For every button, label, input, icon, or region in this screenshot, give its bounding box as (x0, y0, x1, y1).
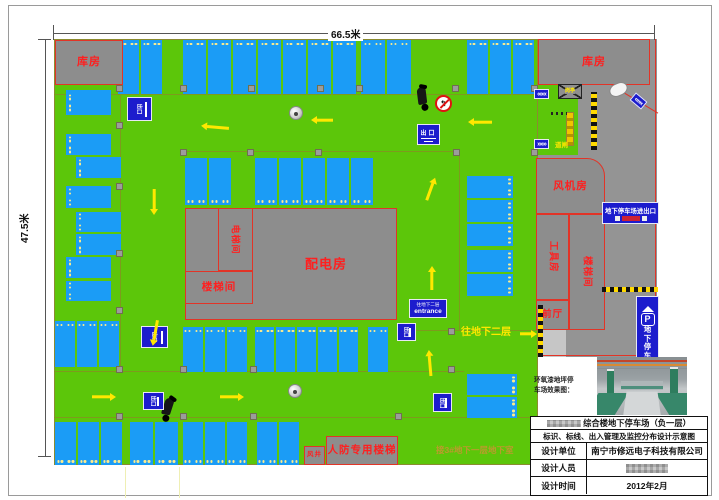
wheel-stop-dots (236, 43, 253, 45)
wheel-stop-dots (211, 43, 228, 45)
designer-label: 设计人员 (531, 460, 587, 476)
titleblock-row-design-unit: 设计单位 南宁市修远电子科技有限公司 (531, 443, 707, 460)
wheel-stop-dots (353, 200, 370, 202)
pillar-marker (448, 328, 455, 335)
parking-stall (283, 40, 306, 94)
wheel-stop-dots (508, 202, 510, 219)
parking-stall (467, 397, 517, 418)
entrance-sign: 往地下二层entrance (409, 299, 447, 318)
parking-stall (141, 40, 162, 94)
parking-stall (78, 422, 99, 465)
designer-value (587, 460, 707, 476)
parking-entrance-sign-text: 地下停车场进出口 (605, 206, 656, 215)
wheel-stop-dots (469, 43, 486, 45)
wheel-stop-dots (206, 460, 223, 462)
left-dimension-tick-top (38, 39, 51, 40)
chevron-left-text: ««« (537, 91, 546, 98)
plan-line (54, 417, 538, 418)
no-left-turn-sign: ↰ (435, 95, 452, 112)
dome-camera-icon (289, 106, 303, 120)
wheel-stop-dots (340, 330, 357, 332)
yellow-black-barrier-stripe (591, 92, 597, 150)
direction-arrow (427, 266, 437, 290)
top-dimension-tick-right (654, 25, 655, 40)
room-label: 电梯间 (231, 224, 240, 254)
parking-stall (279, 158, 301, 205)
wheel-stop-dots (228, 460, 245, 462)
photo-caption-line2: 车场效果图： (534, 386, 596, 396)
room-label: 前厅 (542, 310, 563, 320)
parking-stall (257, 422, 277, 465)
wheel-stop-dots (56, 324, 73, 326)
design-unit-label: 设计单位 (531, 443, 587, 459)
fold-mark (179, 467, 180, 498)
chevron-right: »»» (534, 139, 549, 149)
wheel-stop-dots (57, 460, 74, 462)
pillar-marker (180, 366, 187, 373)
wheel-stop-dots (79, 236, 81, 253)
wheel-stop-dots (69, 259, 71, 276)
yellow-black-barrier-stripe (602, 287, 658, 292)
title-line-1-text: 综合楼地下停车场（负一层） (583, 417, 691, 429)
wheel-stop-dots (364, 43, 381, 45)
room-fan-room: 风机房 (536, 158, 605, 214)
pillar-marker (116, 307, 123, 314)
parking-stall (101, 422, 122, 465)
room-label: 库房 (77, 57, 101, 68)
parking-stall (255, 327, 274, 372)
parking-stall (99, 321, 119, 367)
exit-sign-upper-text (421, 138, 436, 139)
wheel-stop-dots (103, 460, 120, 462)
room-stair-room-central: 楼梯间 (185, 271, 253, 304)
wheel-stop-dots (508, 252, 510, 269)
parking-stall (205, 422, 225, 465)
pillar-marker (448, 366, 455, 373)
parking-stall (76, 212, 121, 232)
exit-pictogram-1-text: 出口 (135, 103, 143, 114)
entrance-sign-text: 往地下二层 (417, 302, 440, 308)
room-label: 配电房 (254, 258, 398, 271)
wheel-stop-dots (69, 136, 71, 153)
parking-stall (333, 40, 356, 94)
title-line-1: 综合楼地下停车场（负一层） (531, 417, 707, 430)
parking-stall (279, 422, 299, 465)
parking-stall (130, 422, 153, 465)
wheel-stop-dots (286, 43, 303, 45)
photo-driveway (623, 392, 661, 415)
wheel-stop-dots (258, 460, 275, 462)
wheel-stop-dots (228, 330, 245, 332)
parking-stall (327, 158, 349, 205)
wheel-stop-dots (508, 276, 510, 293)
guard-booth-label: 岗亭 (565, 89, 575, 94)
pillar-marker (250, 413, 257, 420)
wheel-stop-dots (69, 94, 71, 111)
wheel-stop-dots (261, 43, 278, 45)
parking-stall (467, 374, 517, 395)
parking-stall (467, 250, 513, 272)
parking-stall (258, 40, 281, 94)
wheel-stop-dots (69, 188, 71, 205)
direction-arrow (311, 115, 333, 125)
wheel-stop-dots (508, 226, 510, 243)
direction-arrow (520, 329, 537, 339)
parking-stall (185, 158, 207, 205)
garage-effect-photo (597, 357, 687, 415)
parking-stall (66, 281, 111, 301)
pillar-marker (317, 85, 324, 92)
parking-stall (318, 327, 337, 372)
wheel-stop-dots (184, 330, 201, 332)
wheel-stop-dots (184, 460, 201, 462)
parking-stall (55, 422, 76, 465)
pillar-marker (180, 149, 187, 156)
exit-pictogram-5-text: 出口 (149, 395, 157, 406)
wheel-stop-dots (390, 43, 407, 45)
fold-mark (125, 467, 126, 498)
pillar-marker (116, 85, 123, 92)
pillar-marker (356, 85, 363, 92)
room-label: 楼梯间 (202, 282, 237, 293)
parking-stall (208, 40, 231, 94)
parking-stall (276, 327, 295, 372)
parking-stall (351, 158, 373, 205)
wheel-stop-dots (512, 376, 514, 393)
dotted-stop-line (551, 112, 567, 115)
to-basement2-label: 往地下二层 (461, 328, 511, 338)
titleblock-row-designer: 设计人员 (531, 460, 707, 477)
photo-wall-stripe (621, 386, 663, 389)
wheel-stop-dots (158, 460, 175, 462)
redacted-designer-name (626, 464, 668, 473)
room-storage-top-left: 库房 (55, 40, 123, 85)
photo-caption: 环氧漆地坪停 车场效果图： (534, 376, 596, 396)
title-line-2: 标识、标线、出入管理及监控分布设计示意图 (531, 430, 707, 443)
plan-line (459, 152, 460, 330)
plan-line (54, 94, 538, 95)
entrance-sign-text: entrance (414, 308, 442, 315)
design-date-label: 设计时间 (531, 477, 587, 494)
pillar-marker (315, 149, 322, 156)
redacted-title-prefix (547, 420, 581, 427)
design-unit-value: 南宁市修远电子科技有限公司 (587, 443, 707, 459)
exit-sign-upper-text (424, 141, 432, 142)
parking-stall (467, 176, 513, 198)
wheel-stop-dots (100, 324, 117, 326)
pillar-marker (250, 366, 257, 373)
chevron-corner-text: ««« (633, 96, 644, 107)
parking-stall (183, 422, 203, 465)
wheel-stop-dots (369, 330, 386, 332)
parking-stall (76, 157, 121, 178)
dome-camera-icon (288, 384, 302, 398)
chevron-left: ««« (534, 89, 549, 99)
parking-stall (297, 327, 316, 372)
parking-stall (361, 40, 385, 94)
room-label: 风机房 (553, 181, 588, 192)
wheel-stop-dots (78, 324, 95, 326)
left-dimension-label: 47.5米 (16, 211, 31, 246)
room-air-shaft: 风井 (304, 446, 325, 465)
wheel-stop-dots (211, 200, 228, 202)
exit-pictogram-5: 出口 (143, 392, 164, 410)
parking-stall (255, 158, 277, 205)
parking-stall (155, 422, 178, 465)
exit-pictogram-4: 出口 (433, 393, 452, 412)
wheel-stop-dots (329, 200, 346, 202)
pillar-marker (116, 413, 123, 420)
parking-stall (205, 327, 225, 372)
photo-pipe (597, 364, 687, 366)
wheel-stop-dots (80, 460, 97, 462)
room-label: 人防专用楼梯 (328, 445, 397, 456)
direction-arrow (149, 189, 159, 215)
direction-arrow (468, 117, 492, 127)
title-block: 综合楼地下停车场（负一层） 标识、标线、出入管理及监控分布设计示意图 设计单位 … (530, 416, 708, 496)
parking-stall (467, 224, 513, 246)
photo-caption-line1: 环氧漆地坪停 (534, 376, 596, 386)
room-tool-room: 工具房 (536, 214, 569, 300)
wheel-stop-dots (281, 200, 298, 202)
pillar-marker (180, 85, 187, 92)
wheel-stop-dots (143, 43, 160, 45)
wheel-stop-dots (277, 330, 294, 332)
parking-stall (490, 40, 511, 94)
room-label: 楼梯间 (582, 256, 592, 288)
wheel-stop-dots (492, 43, 509, 45)
wheel-stop-dots (79, 159, 81, 176)
pillar-marker (531, 149, 538, 156)
wheel-stop-dots (305, 200, 322, 202)
room-label: 库房 (582, 57, 606, 68)
wheel-stop-dots (280, 460, 297, 462)
room-label: 风井 (307, 452, 322, 459)
wheel-stop-dots (69, 282, 71, 299)
direction-arrow (92, 392, 116, 402)
parking-stall (387, 40, 411, 94)
wheel-stop-dots (256, 330, 273, 332)
exit-sign-upper-text: 出口 (420, 128, 436, 137)
room-label: 工具房 (548, 241, 558, 273)
pillar-marker (453, 149, 460, 156)
parking-stall (467, 274, 513, 296)
room-storage-top-right: 库房 (538, 39, 650, 85)
wheel-stop-dots (336, 43, 353, 45)
wheel-stop-dots (515, 43, 532, 45)
exit-pictogram-3: 出口 (397, 323, 416, 341)
titleblock-row-design-date: 设计时间 2012年2月 (531, 477, 707, 494)
direction-arrow (424, 350, 436, 377)
parking-stall (227, 422, 247, 465)
parking-stall (339, 327, 358, 372)
parking-stall (66, 186, 111, 208)
chevron-right-text: »»» (537, 141, 546, 148)
parking-stall (368, 327, 388, 372)
left-dimension-line (45, 40, 46, 457)
pillar-marker (247, 149, 254, 156)
parking-stall (467, 40, 488, 94)
connect-note: 接3#地下一层地下室 (436, 446, 513, 455)
wheel-stop-dots (311, 43, 328, 45)
wheel-stop-dots (186, 43, 203, 45)
room-stair-room-right: 楼梯间 (569, 214, 605, 330)
pillar-marker (180, 413, 187, 420)
room-elevator-room: 电梯间 (218, 208, 253, 271)
pillar-marker (116, 366, 123, 373)
parking-stall (303, 158, 325, 205)
parking-stall (77, 321, 97, 367)
parking-entrance-sign: 地下停车场进出口 (602, 202, 659, 224)
barrier-gate-arm (566, 112, 574, 146)
parking-stall (66, 257, 111, 278)
pillar-marker (452, 85, 459, 92)
pillar-marker (248, 85, 255, 92)
parking-stall (467, 200, 513, 222)
parking-stall (66, 134, 111, 155)
wheel-stop-dots (319, 330, 336, 332)
wheel-stop-dots (79, 213, 81, 230)
yellow-black-barrier-stripe (538, 305, 543, 357)
exit-pictogram-1: 出口 (127, 97, 152, 121)
wheel-stop-dots (187, 200, 204, 202)
design-date-value: 2012年2月 (587, 477, 707, 494)
pillar-marker (116, 122, 123, 129)
parking-stall (55, 321, 75, 367)
wheel-stop-dots (298, 330, 315, 332)
left-dimension-tick-bottom (38, 456, 51, 457)
top-dimension-label: 66.5米 (328, 26, 363, 41)
wheel-stop-dots (206, 330, 223, 332)
guard-booth: 岗亭 (558, 84, 582, 99)
wheel-stop-dots (512, 399, 514, 416)
exit-sign-upper: 出口 (417, 124, 440, 145)
room-civil-defense-stair: 人防专用楼梯 (326, 436, 398, 465)
wheel-stop-dots (133, 460, 150, 462)
gate-arm-label: 道闸 (555, 143, 568, 150)
parking-stall (209, 158, 231, 205)
photo-pipe (597, 360, 687, 362)
direction-arrow (220, 392, 244, 402)
parking-stall (66, 90, 111, 115)
parking-stall (76, 234, 121, 255)
pillar-marker (116, 250, 123, 257)
parking-stall (227, 327, 247, 372)
wheel-stop-dots (508, 178, 510, 195)
pillar-marker (116, 183, 123, 190)
top-dimension-tick-left (53, 25, 54, 40)
pillar-marker (395, 413, 402, 420)
wheel-stop-dots (257, 200, 274, 202)
